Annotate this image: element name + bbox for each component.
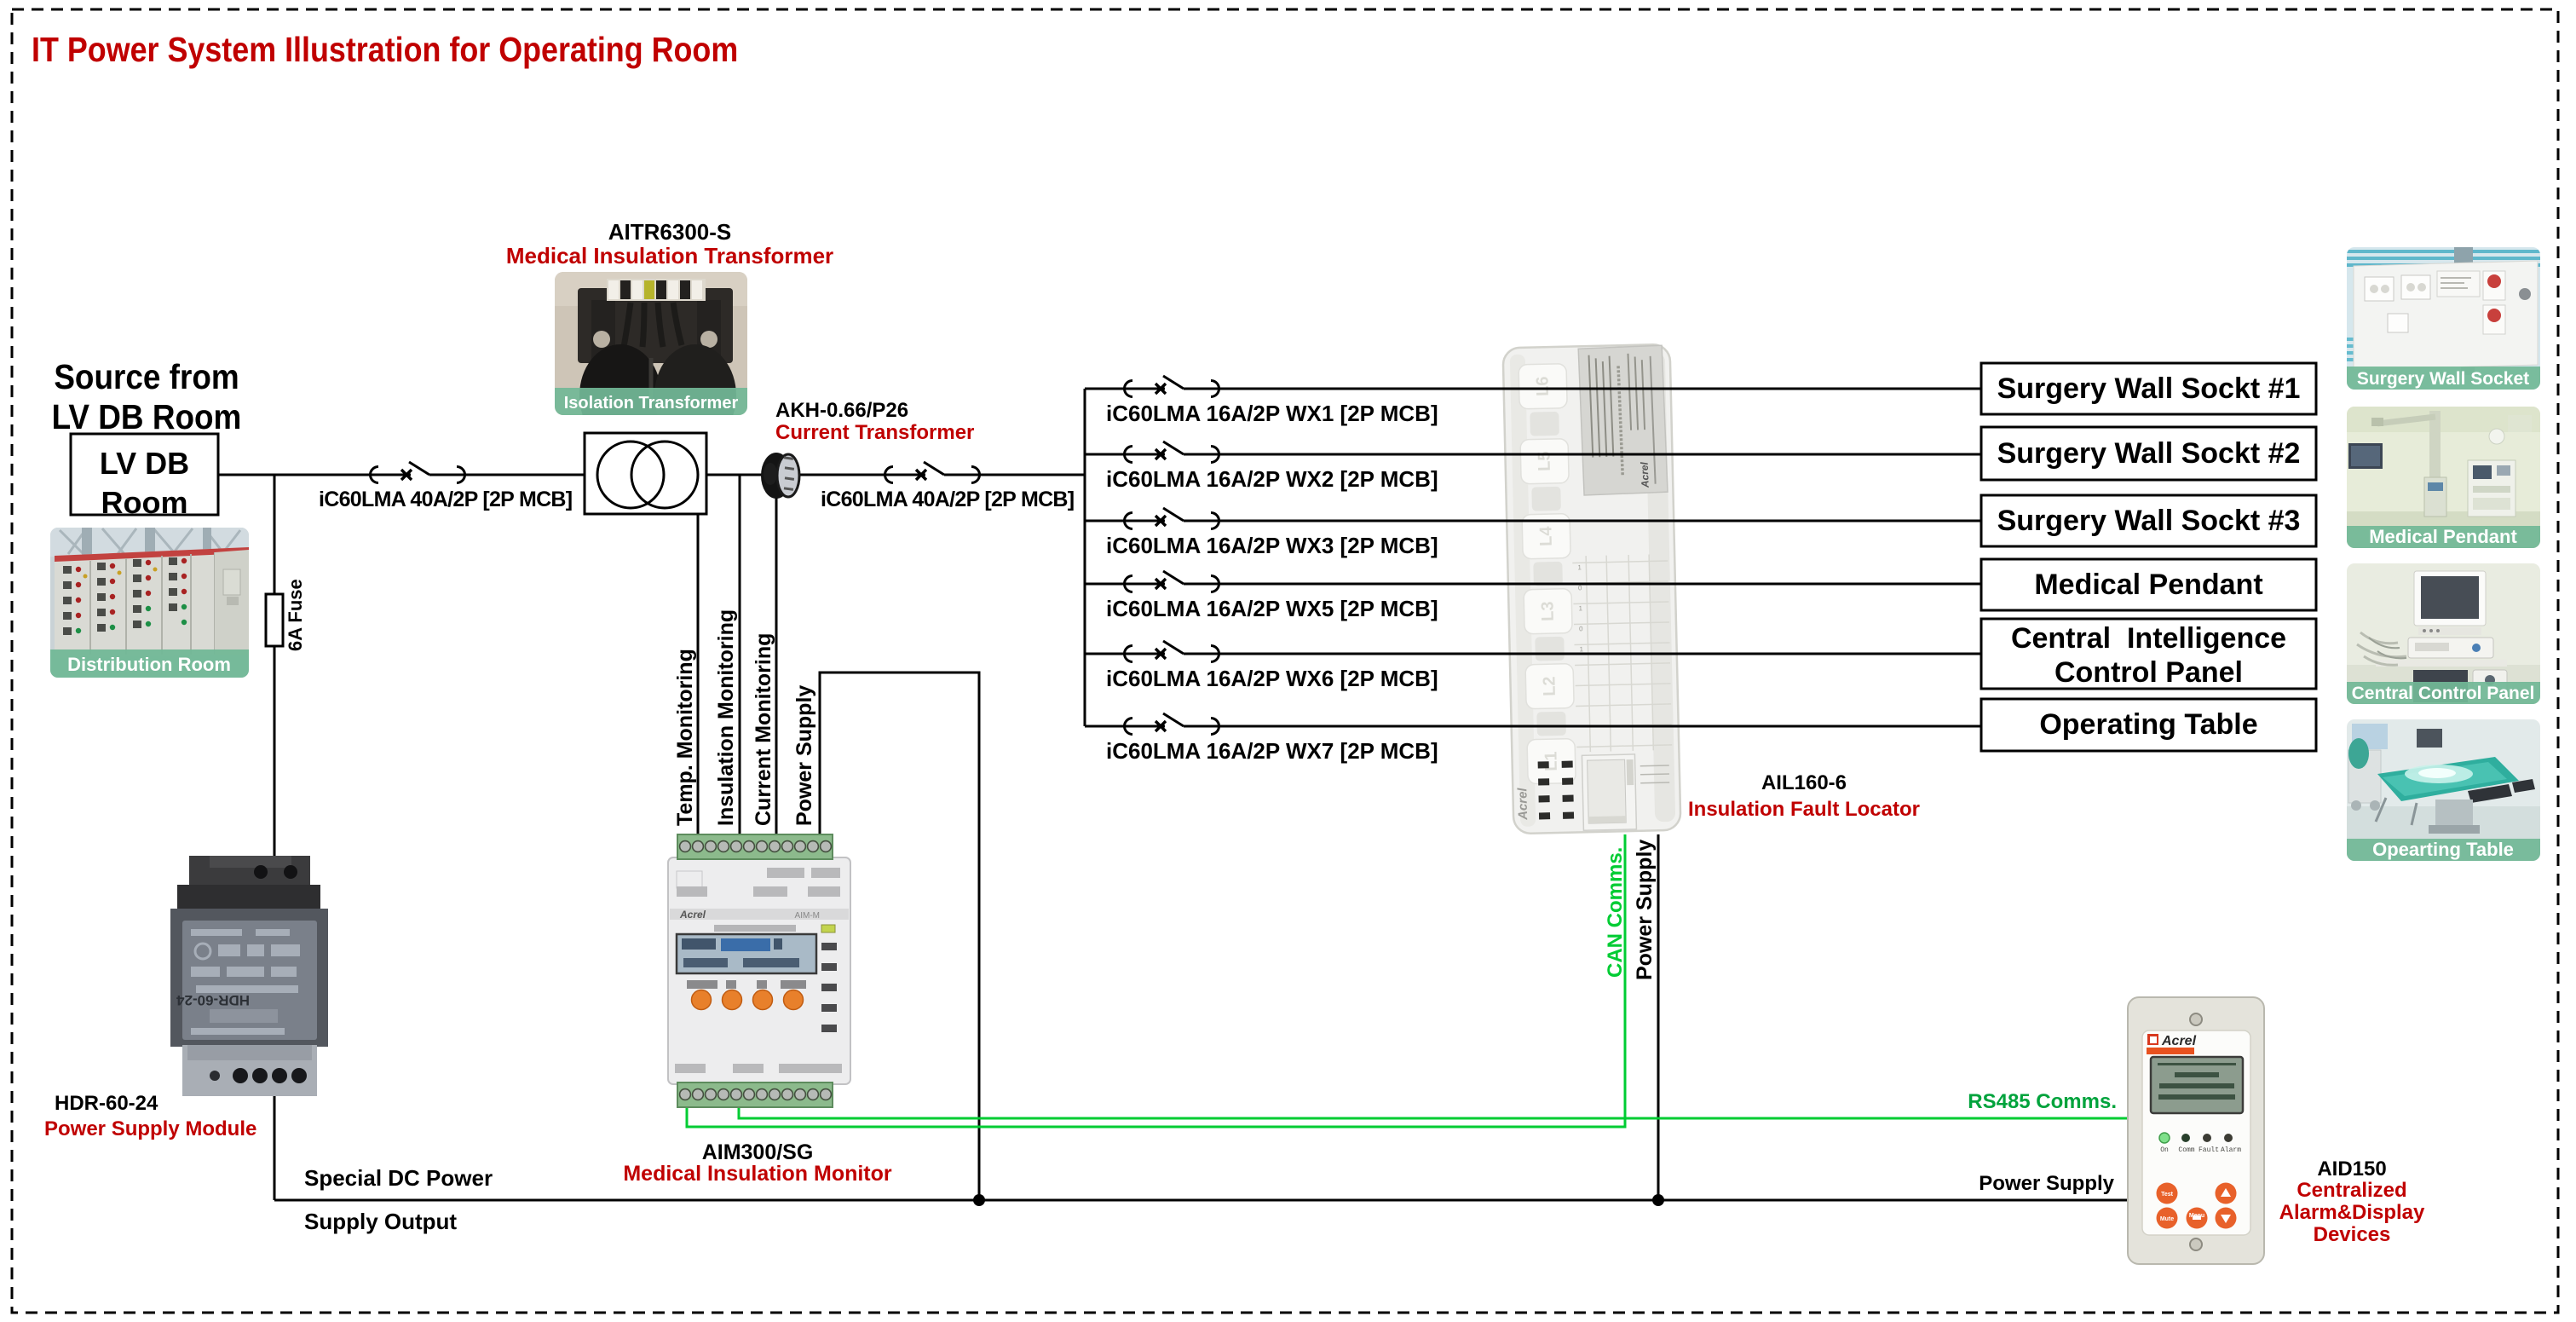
- svg-text:Medical Pendant: Medical Pendant: [2369, 526, 2517, 547]
- svg-text:L2: L2: [1540, 676, 1559, 696]
- svg-text:Acrel: Acrel: [679, 909, 706, 921]
- svg-text:On: On: [2160, 1146, 2169, 1154]
- svg-text:L1: L1: [1542, 751, 1561, 771]
- svg-text:Central Control Panel: Central Control Panel: [2352, 684, 2535, 703]
- svg-text:Opearting Table: Opearting Table: [2372, 839, 2514, 860]
- svg-text:L3: L3: [1538, 601, 1558, 621]
- svg-text:L6: L6: [1533, 376, 1553, 396]
- svg-text:HDR-60-24: HDR-60-24: [176, 992, 250, 1008]
- svg-text:Alarm: Alarm: [2221, 1146, 2241, 1154]
- svg-text:Comm: Comm: [2178, 1146, 2194, 1154]
- svg-text:0: 0: [1578, 584, 1582, 592]
- svg-text:Acrel: Acrel: [2161, 1034, 2197, 1048]
- svg-text:1: 1: [1577, 563, 1582, 571]
- svg-text:Acrel: Acrel: [1515, 787, 1530, 821]
- svg-text:1: 1: [1580, 645, 1584, 653]
- svg-text:L4: L4: [1536, 525, 1556, 546]
- svg-text:Mute: Mute: [2160, 1216, 2174, 1222]
- svg-text:Isolation Transformer: Isolation Transformer: [564, 394, 739, 413]
- svg-text:Fault: Fault: [2199, 1146, 2219, 1154]
- svg-text:AIM-M: AIM-M: [795, 911, 820, 921]
- svg-text:0: 0: [1579, 625, 1583, 632]
- svg-text:Acrel: Acrel: [1639, 461, 1651, 488]
- svg-text:1: 1: [1578, 604, 1582, 612]
- svg-text:Distribution Room: Distribution Room: [67, 654, 231, 675]
- svg-text:Surgery Wall Socket: Surgery Wall Socket: [2357, 369, 2529, 389]
- svg-text:Test: Test: [2161, 1192, 2174, 1198]
